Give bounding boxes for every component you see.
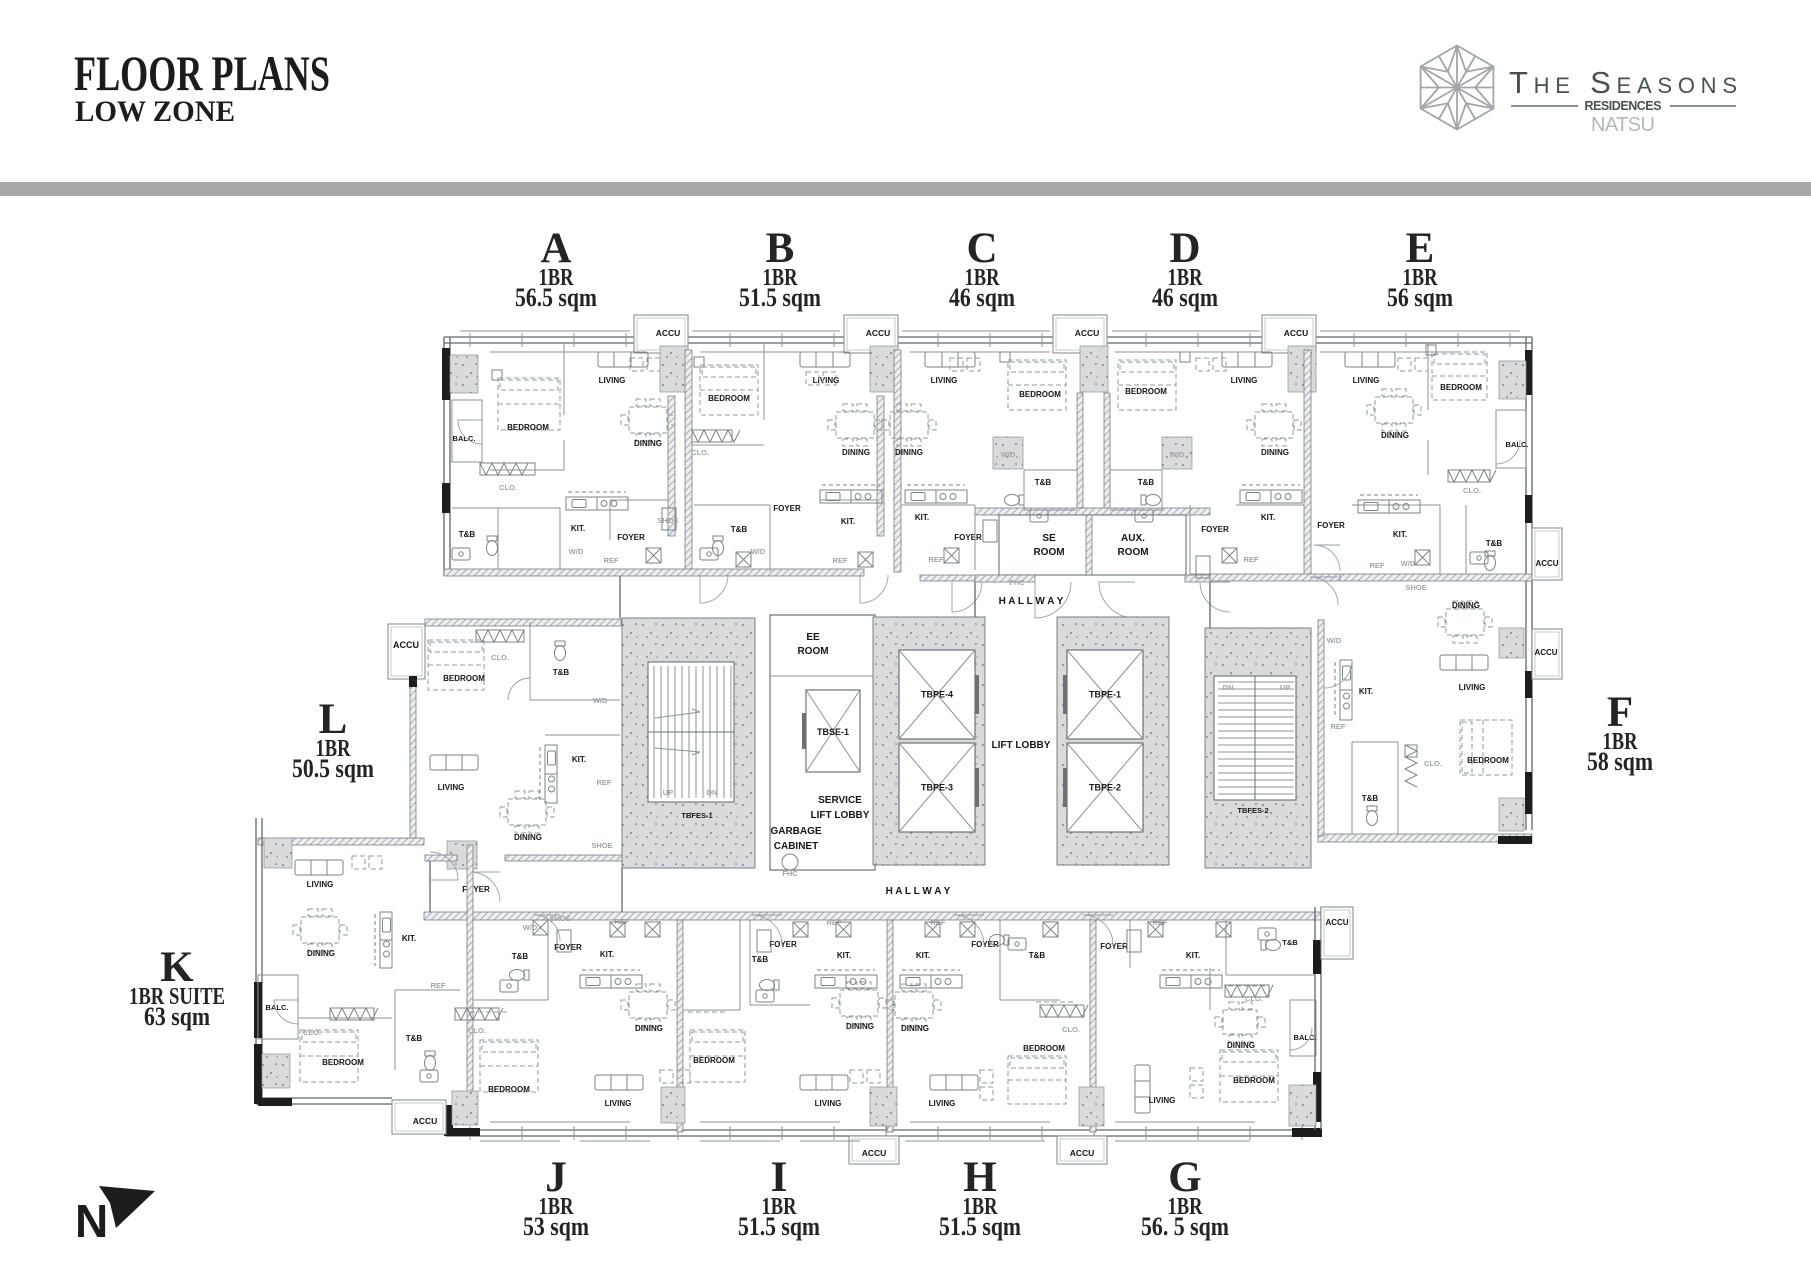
svg-text:FLOOR PLANS: FLOOR PLANS: [74, 45, 330, 101]
svg-text:CABINET: CABINET: [774, 841, 818, 852]
svg-text:BEDROOM: BEDROOM: [322, 1058, 364, 1067]
svg-text:FHC: FHC: [782, 869, 798, 878]
svg-text:BEDROOM: BEDROOM: [1233, 1076, 1275, 1085]
svg-text:46 sqm: 46 sqm: [1152, 282, 1218, 312]
svg-text:T&B: T&B: [752, 955, 769, 964]
svg-text:N: N: [75, 1195, 108, 1247]
svg-text:T&B: T&B: [1362, 794, 1379, 803]
svg-text:BEDROOM: BEDROOM: [708, 394, 750, 403]
svg-text:UP: UP: [663, 788, 673, 797]
svg-text:LIVING: LIVING: [931, 376, 958, 385]
svg-text:KIT.: KIT.: [915, 513, 929, 522]
svg-text:DINING: DINING: [1261, 448, 1289, 457]
svg-text:CLO.: CLO.: [303, 1028, 321, 1037]
svg-text:REF: REF: [1370, 561, 1385, 570]
svg-text:ACCU: ACCU: [1534, 648, 1557, 657]
svg-text:LIVING: LIVING: [1353, 376, 1380, 385]
svg-text:46 sqm: 46 sqm: [949, 282, 1015, 312]
svg-text:ROOM: ROOM: [1033, 547, 1064, 558]
svg-text:50.5 sqm: 50.5 sqm: [292, 753, 374, 783]
svg-text:T&B: T&B: [512, 952, 529, 961]
svg-text:T&B: T&B: [1138, 478, 1155, 487]
svg-text:ACCU: ACCU: [862, 1148, 887, 1158]
svg-text:KIT.: KIT.: [402, 934, 416, 943]
svg-text:T&B: T&B: [1486, 539, 1503, 548]
svg-text:CLO.: CLO.: [1463, 486, 1481, 495]
svg-text:T&B: T&B: [731, 525, 748, 534]
svg-text:FOYER: FOYER: [769, 940, 797, 949]
svg-text:DINING: DINING: [842, 448, 870, 457]
svg-text:BALC.: BALC.: [1506, 440, 1529, 449]
svg-text:FOYER: FOYER: [971, 940, 999, 949]
svg-text:DN: DN: [707, 788, 718, 797]
svg-text:REF: REF: [597, 778, 612, 787]
svg-text:REF: REF: [431, 981, 446, 990]
svg-text:KIT.: KIT.: [1393, 530, 1407, 539]
svg-text:DINING: DINING: [1381, 431, 1409, 440]
svg-text:REF: REF: [604, 556, 619, 565]
svg-text:BEDROOM: BEDROOM: [443, 674, 485, 683]
svg-text:KIT.: KIT.: [600, 950, 614, 959]
svg-text:FOYER: FOYER: [554, 943, 582, 952]
svg-text:LIVING: LIVING: [813, 376, 840, 385]
svg-text:KIT.: KIT.: [837, 951, 851, 960]
svg-text:DINING: DINING: [634, 439, 662, 448]
svg-text:CLO.: CLO.: [1424, 759, 1442, 768]
svg-text:LIVING: LIVING: [599, 376, 626, 385]
svg-text:W/D: W/D: [1170, 450, 1185, 459]
svg-text:DINING: DINING: [1227, 1041, 1255, 1050]
svg-text:ACCU: ACCU: [1325, 918, 1348, 927]
svg-text:BEDROOM: BEDROOM: [1023, 1044, 1065, 1053]
svg-text:TBFES-1: TBFES-1: [681, 811, 712, 820]
svg-text:CLO.: CLO.: [499, 483, 517, 492]
svg-text:ROOM: ROOM: [1117, 547, 1148, 558]
svg-text:FOYER: FOYER: [1201, 525, 1229, 534]
svg-text:UP: UP: [1280, 683, 1290, 692]
svg-text:53 sqm: 53 sqm: [523, 1211, 589, 1241]
svg-text:SE: SE: [1042, 533, 1056, 544]
svg-text:CLO.: CLO.: [468, 1026, 486, 1035]
svg-text:DINING: DINING: [635, 1024, 663, 1033]
svg-text:T&B: T&B: [406, 1034, 423, 1043]
svg-text:W/D: W/D: [593, 696, 608, 705]
svg-text:ACCU: ACCU: [1535, 559, 1558, 568]
svg-text:T&B: T&B: [1029, 951, 1046, 960]
svg-text:FOYER: FOYER: [617, 533, 645, 542]
svg-text:LIVING: LIVING: [307, 880, 334, 889]
svg-text:W/D: W/D: [1001, 450, 1016, 459]
svg-text:FOYER: FOYER: [1100, 942, 1128, 951]
svg-text:KIT.: KIT.: [572, 755, 586, 764]
svg-text:BALC.: BALC.: [266, 1003, 289, 1012]
svg-text:TBPE-2: TBPE-2: [1089, 783, 1121, 793]
svg-text:RESIDENCES: RESIDENCES: [1585, 99, 1662, 113]
svg-text:ACCU: ACCU: [866, 328, 891, 338]
svg-text:LIVING: LIVING: [605, 1099, 632, 1108]
svg-text:KIT.: KIT.: [1261, 513, 1275, 522]
svg-text:AUX.: AUX.: [1121, 533, 1145, 544]
svg-text:SERVICE: SERVICE: [818, 795, 862, 806]
svg-text:56 sqm: 56 sqm: [1387, 282, 1453, 312]
svg-text:LIVING: LIVING: [815, 1099, 842, 1108]
svg-text:REF: REF: [833, 556, 848, 565]
svg-text:SHOE: SHOE: [657, 516, 678, 525]
svg-text:GARBAGE: GARBAGE: [770, 826, 821, 837]
svg-text:TBPE-1: TBPE-1: [1089, 690, 1121, 700]
svg-text:51.5 sqm: 51.5 sqm: [739, 282, 821, 312]
svg-text:LIVING: LIVING: [438, 783, 465, 792]
svg-text:T&B: T&B: [1035, 478, 1052, 487]
svg-text:CLO.: CLO.: [691, 448, 709, 457]
svg-text:H A L L W A Y: H A L L W A Y: [999, 596, 1064, 607]
svg-text:T&B: T&B: [553, 668, 570, 677]
svg-text:W/D: W/D: [1401, 559, 1416, 568]
svg-text:DINING: DINING: [846, 1022, 874, 1031]
svg-text:BEDROOM: BEDROOM: [1440, 383, 1482, 392]
svg-text:REF: REF: [1331, 722, 1346, 731]
svg-text:58 sqm: 58 sqm: [1587, 746, 1653, 776]
svg-text:ACCU: ACCU: [1284, 328, 1309, 338]
svg-text:REF: REF: [929, 555, 944, 564]
svg-text:SHOE: SHOE: [1405, 583, 1426, 592]
svg-text:DINING: DINING: [514, 833, 542, 842]
svg-text:KIT.: KIT.: [1186, 951, 1200, 960]
svg-text:H A L L W A Y: H A L L W A Y: [886, 886, 951, 897]
svg-text:W/D: W/D: [569, 547, 584, 556]
svg-text:TBPE-3: TBPE-3: [921, 783, 953, 793]
svg-text:ACCU: ACCU: [1075, 328, 1100, 338]
svg-text:T&B: T&B: [459, 530, 476, 539]
svg-text:56.5 sqm: 56.5 sqm: [515, 282, 597, 312]
svg-text:CLO.: CLO.: [491, 653, 509, 662]
svg-text:DINING: DINING: [307, 949, 335, 958]
svg-text:BEDROOM: BEDROOM: [693, 1056, 735, 1065]
svg-text:BEDROOM: BEDROOM: [1125, 387, 1167, 396]
svg-text:LOW ZONE: LOW ZONE: [75, 95, 235, 128]
svg-text:BEDROOM: BEDROOM: [1467, 756, 1509, 765]
svg-text:W/D: W/D: [1327, 636, 1342, 645]
svg-text:BALC.: BALC.: [1294, 1033, 1317, 1042]
svg-text:BEDROOM: BEDROOM: [1019, 390, 1061, 399]
svg-text:FHC: FHC: [1009, 578, 1025, 587]
svg-text:DINING: DINING: [1452, 601, 1480, 610]
svg-text:KIT.: KIT.: [571, 524, 585, 533]
svg-text:CLO.: CLO.: [1245, 994, 1263, 1003]
svg-text:LIFT LOBBY: LIFT LOBBY: [992, 740, 1051, 751]
svg-text:KIT.: KIT.: [841, 517, 855, 526]
svg-text:TBFES-2: TBFES-2: [1237, 806, 1268, 815]
svg-text:LIVING: LIVING: [1149, 1096, 1176, 1105]
svg-text:ACCU: ACCU: [393, 640, 419, 650]
svg-text:W/D: W/D: [751, 547, 766, 556]
svg-text:DINING: DINING: [895, 448, 923, 457]
svg-text:51.5 sqm: 51.5 sqm: [939, 1211, 1021, 1241]
svg-text:BEDROOM: BEDROOM: [507, 423, 549, 432]
svg-text:ACCU: ACCU: [413, 1116, 438, 1126]
svg-text:ACCU: ACCU: [656, 328, 681, 338]
svg-text:LIVING: LIVING: [1231, 376, 1258, 385]
svg-text:63 sqm: 63 sqm: [144, 1001, 210, 1031]
svg-text:ACCU: ACCU: [1070, 1148, 1095, 1158]
svg-text:T&B: T&B: [1282, 938, 1298, 947]
svg-text:EE: EE: [806, 632, 820, 643]
svg-text:FOYER: FOYER: [462, 885, 490, 894]
svg-text:KIT.: KIT.: [1359, 687, 1373, 696]
svg-text:KIT.: KIT.: [916, 951, 930, 960]
svg-text:51.5 sqm: 51.5 sqm: [738, 1211, 820, 1241]
svg-text:LIVING: LIVING: [1459, 683, 1486, 692]
svg-text:LIVING: LIVING: [929, 1099, 956, 1108]
svg-text:FOYER: FOYER: [773, 504, 801, 513]
svg-text:LIFT LOBBY: LIFT LOBBY: [811, 810, 870, 821]
svg-text:W/D: W/D: [523, 923, 538, 932]
svg-text:56. 5 sqm: 56. 5 sqm: [1141, 1211, 1229, 1241]
svg-text:REF: REF: [1244, 555, 1259, 564]
svg-text:TBPE-4: TBPE-4: [921, 690, 953, 700]
svg-text:TBSE-1: TBSE-1: [817, 727, 849, 737]
svg-text:BEDROOM: BEDROOM: [488, 1085, 530, 1094]
svg-text:DN: DN: [1223, 683, 1234, 692]
svg-text:DINING: DINING: [901, 1024, 929, 1033]
svg-text:FOYER: FOYER: [954, 533, 982, 542]
svg-text:SHOE: SHOE: [591, 841, 612, 850]
svg-text:NATSU: NATSU: [1591, 114, 1655, 136]
svg-text:ROOM: ROOM: [797, 646, 828, 657]
svg-text:CLO.: CLO.: [1062, 1025, 1080, 1034]
svg-text:FOYER: FOYER: [1317, 521, 1345, 530]
svg-text:The Seasons: The Seasons: [1509, 65, 1737, 100]
